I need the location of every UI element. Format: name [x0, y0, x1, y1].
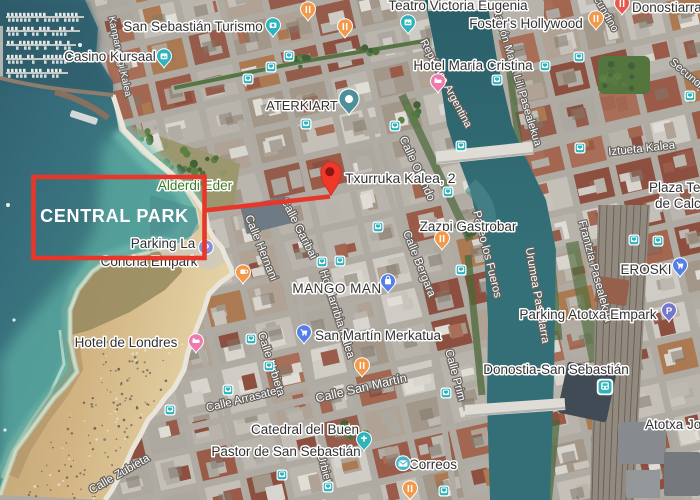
svg-text:Donostiarra: Donostiarra [632, 0, 700, 15]
svg-text:San Sebastián Turismo: San Sebastián Turismo [123, 19, 263, 34]
svg-text:Parking Atotxa Empark: Parking Atotxa Empark [519, 307, 657, 322]
svg-text:Teatro Victoria Eugenia: Teatro Victoria Eugenia [388, 0, 528, 13]
svg-text:de Calcu: de Calcu [655, 196, 700, 211]
svg-text:Zazpi Gastrobar: Zazpi Gastrobar [420, 219, 517, 234]
svg-text:ATERKIART: ATERKIART [266, 98, 338, 113]
svg-text:Hotel María Cristina: Hotel María Cristina [413, 58, 533, 73]
svg-text:Donostia-San Sebastián: Donostia-San Sebastián [483, 362, 629, 377]
svg-text:Pastor de San Sebastián: Pastor de San Sebastián [211, 444, 360, 459]
svg-text:Parking La: Parking La [131, 236, 196, 251]
svg-text:Txurruka Kalea, 2: Txurruka Kalea, 2 [345, 170, 456, 186]
svg-text:Catedral del Buen: Catedral del Buen [251, 422, 359, 437]
svg-text:CENTRAL PARK: CENTRAL PARK [40, 206, 189, 226]
svg-text:Hotel de Londres: Hotel de Londres [75, 335, 178, 350]
svg-text:Atotxa Jo: Atotxa Jo [645, 417, 700, 432]
svg-text:EROSKI: EROSKI [620, 262, 671, 277]
svg-text:P: P [666, 306, 673, 317]
svg-text:Plaza Ter: Plaza Ter [649, 180, 700, 195]
svg-text:MANGO MAN: MANGO MAN [292, 281, 381, 296]
svg-text:Correos: Correos [409, 457, 457, 472]
svg-text:Foster's Hollywood: Foster's Hollywood [469, 16, 583, 31]
svg-text:Casino Kursaal: Casino Kursaal [64, 49, 156, 64]
svg-text:San Martín Merkatua: San Martín Merkatua [315, 328, 442, 343]
svg-text:Alderdi Eder: Alderdi Eder [158, 178, 233, 193]
